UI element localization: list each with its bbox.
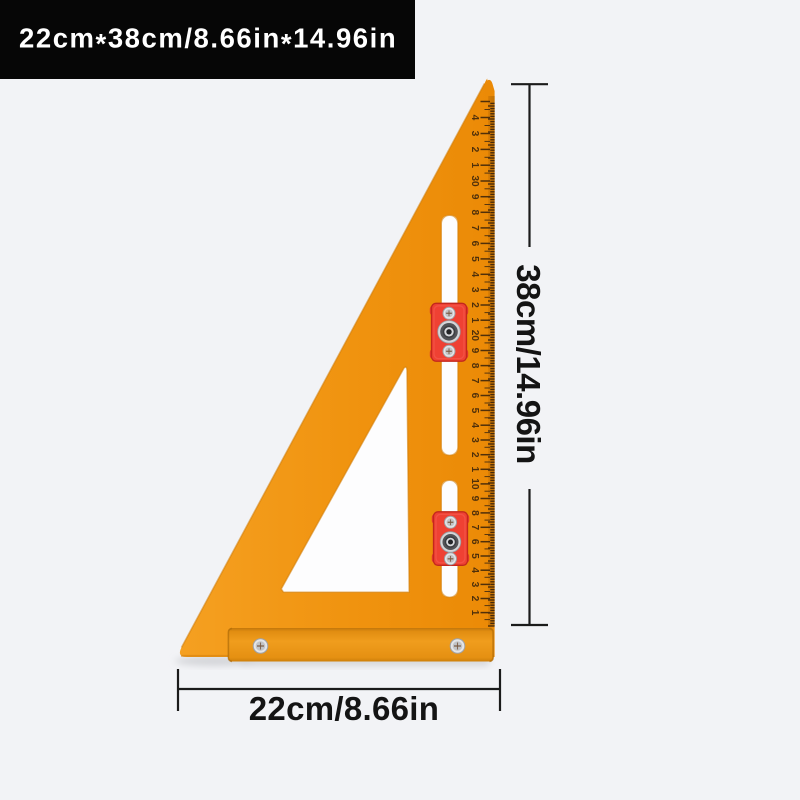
svg-text:4: 4 (469, 271, 480, 277)
svg-text:8: 8 (469, 209, 480, 215)
svg-text:6: 6 (469, 539, 480, 545)
svg-text:6: 6 (469, 393, 480, 399)
svg-text:22cm/8.66in: 22cm/8.66in (249, 690, 439, 727)
svg-text:6: 6 (469, 241, 480, 247)
svg-text:20: 20 (469, 330, 480, 342)
svg-text:7: 7 (469, 524, 480, 530)
svg-text:8: 8 (469, 510, 480, 516)
svg-text:9: 9 (469, 496, 480, 502)
svg-text:4: 4 (469, 422, 480, 428)
svg-text:5: 5 (469, 256, 480, 262)
svg-text:3: 3 (469, 131, 480, 137)
svg-text:30: 30 (469, 175, 480, 187)
svg-text:5: 5 (469, 553, 480, 559)
svg-text:2: 2 (469, 302, 480, 308)
svg-text:2: 2 (469, 147, 480, 153)
svg-text:2: 2 (469, 596, 480, 602)
svg-text:3: 3 (469, 437, 480, 443)
svg-text:1: 1 (469, 317, 480, 323)
svg-text:1: 1 (469, 610, 480, 616)
svg-text:1: 1 (469, 466, 480, 472)
svg-text:4: 4 (469, 567, 480, 573)
svg-text:38cm/14.96in: 38cm/14.96in (510, 264, 547, 463)
svg-text:3: 3 (469, 287, 480, 293)
svg-text:5: 5 (469, 408, 480, 414)
svg-text:3: 3 (469, 582, 480, 588)
svg-text:4: 4 (469, 115, 480, 121)
svg-text:10: 10 (469, 478, 480, 490)
svg-text:9: 9 (469, 348, 480, 354)
svg-text:8: 8 (469, 363, 480, 369)
svg-text:1: 1 (469, 162, 480, 168)
svg-text:2: 2 (469, 452, 480, 458)
svg-text:9: 9 (469, 194, 480, 200)
svg-text:7: 7 (469, 378, 480, 384)
svg-text:7: 7 (469, 225, 480, 231)
